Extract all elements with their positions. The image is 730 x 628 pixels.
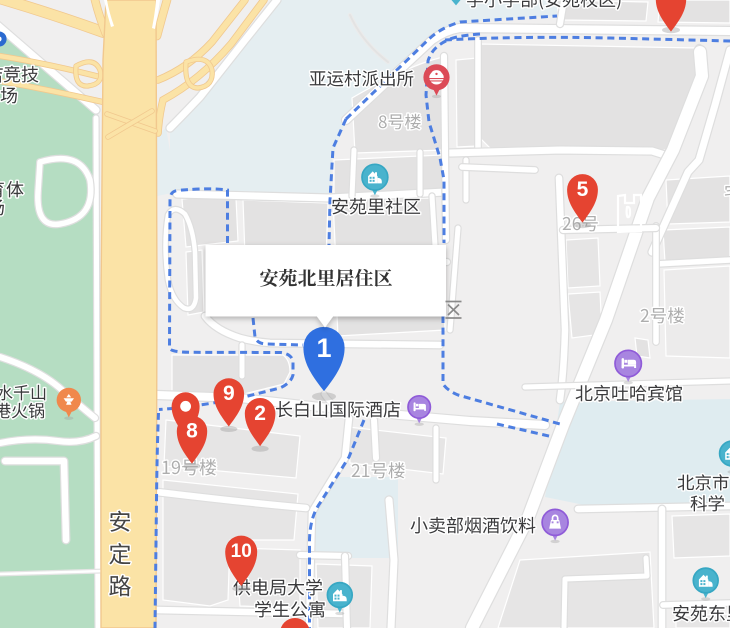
svg-text:2: 2 — [254, 402, 266, 425]
svg-text:8: 8 — [186, 420, 198, 443]
svg-text:10: 10 — [231, 541, 252, 562]
svg-text:5: 5 — [577, 178, 589, 201]
svg-text:1: 1 — [316, 333, 331, 363]
svg-text:9: 9 — [223, 382, 235, 405]
